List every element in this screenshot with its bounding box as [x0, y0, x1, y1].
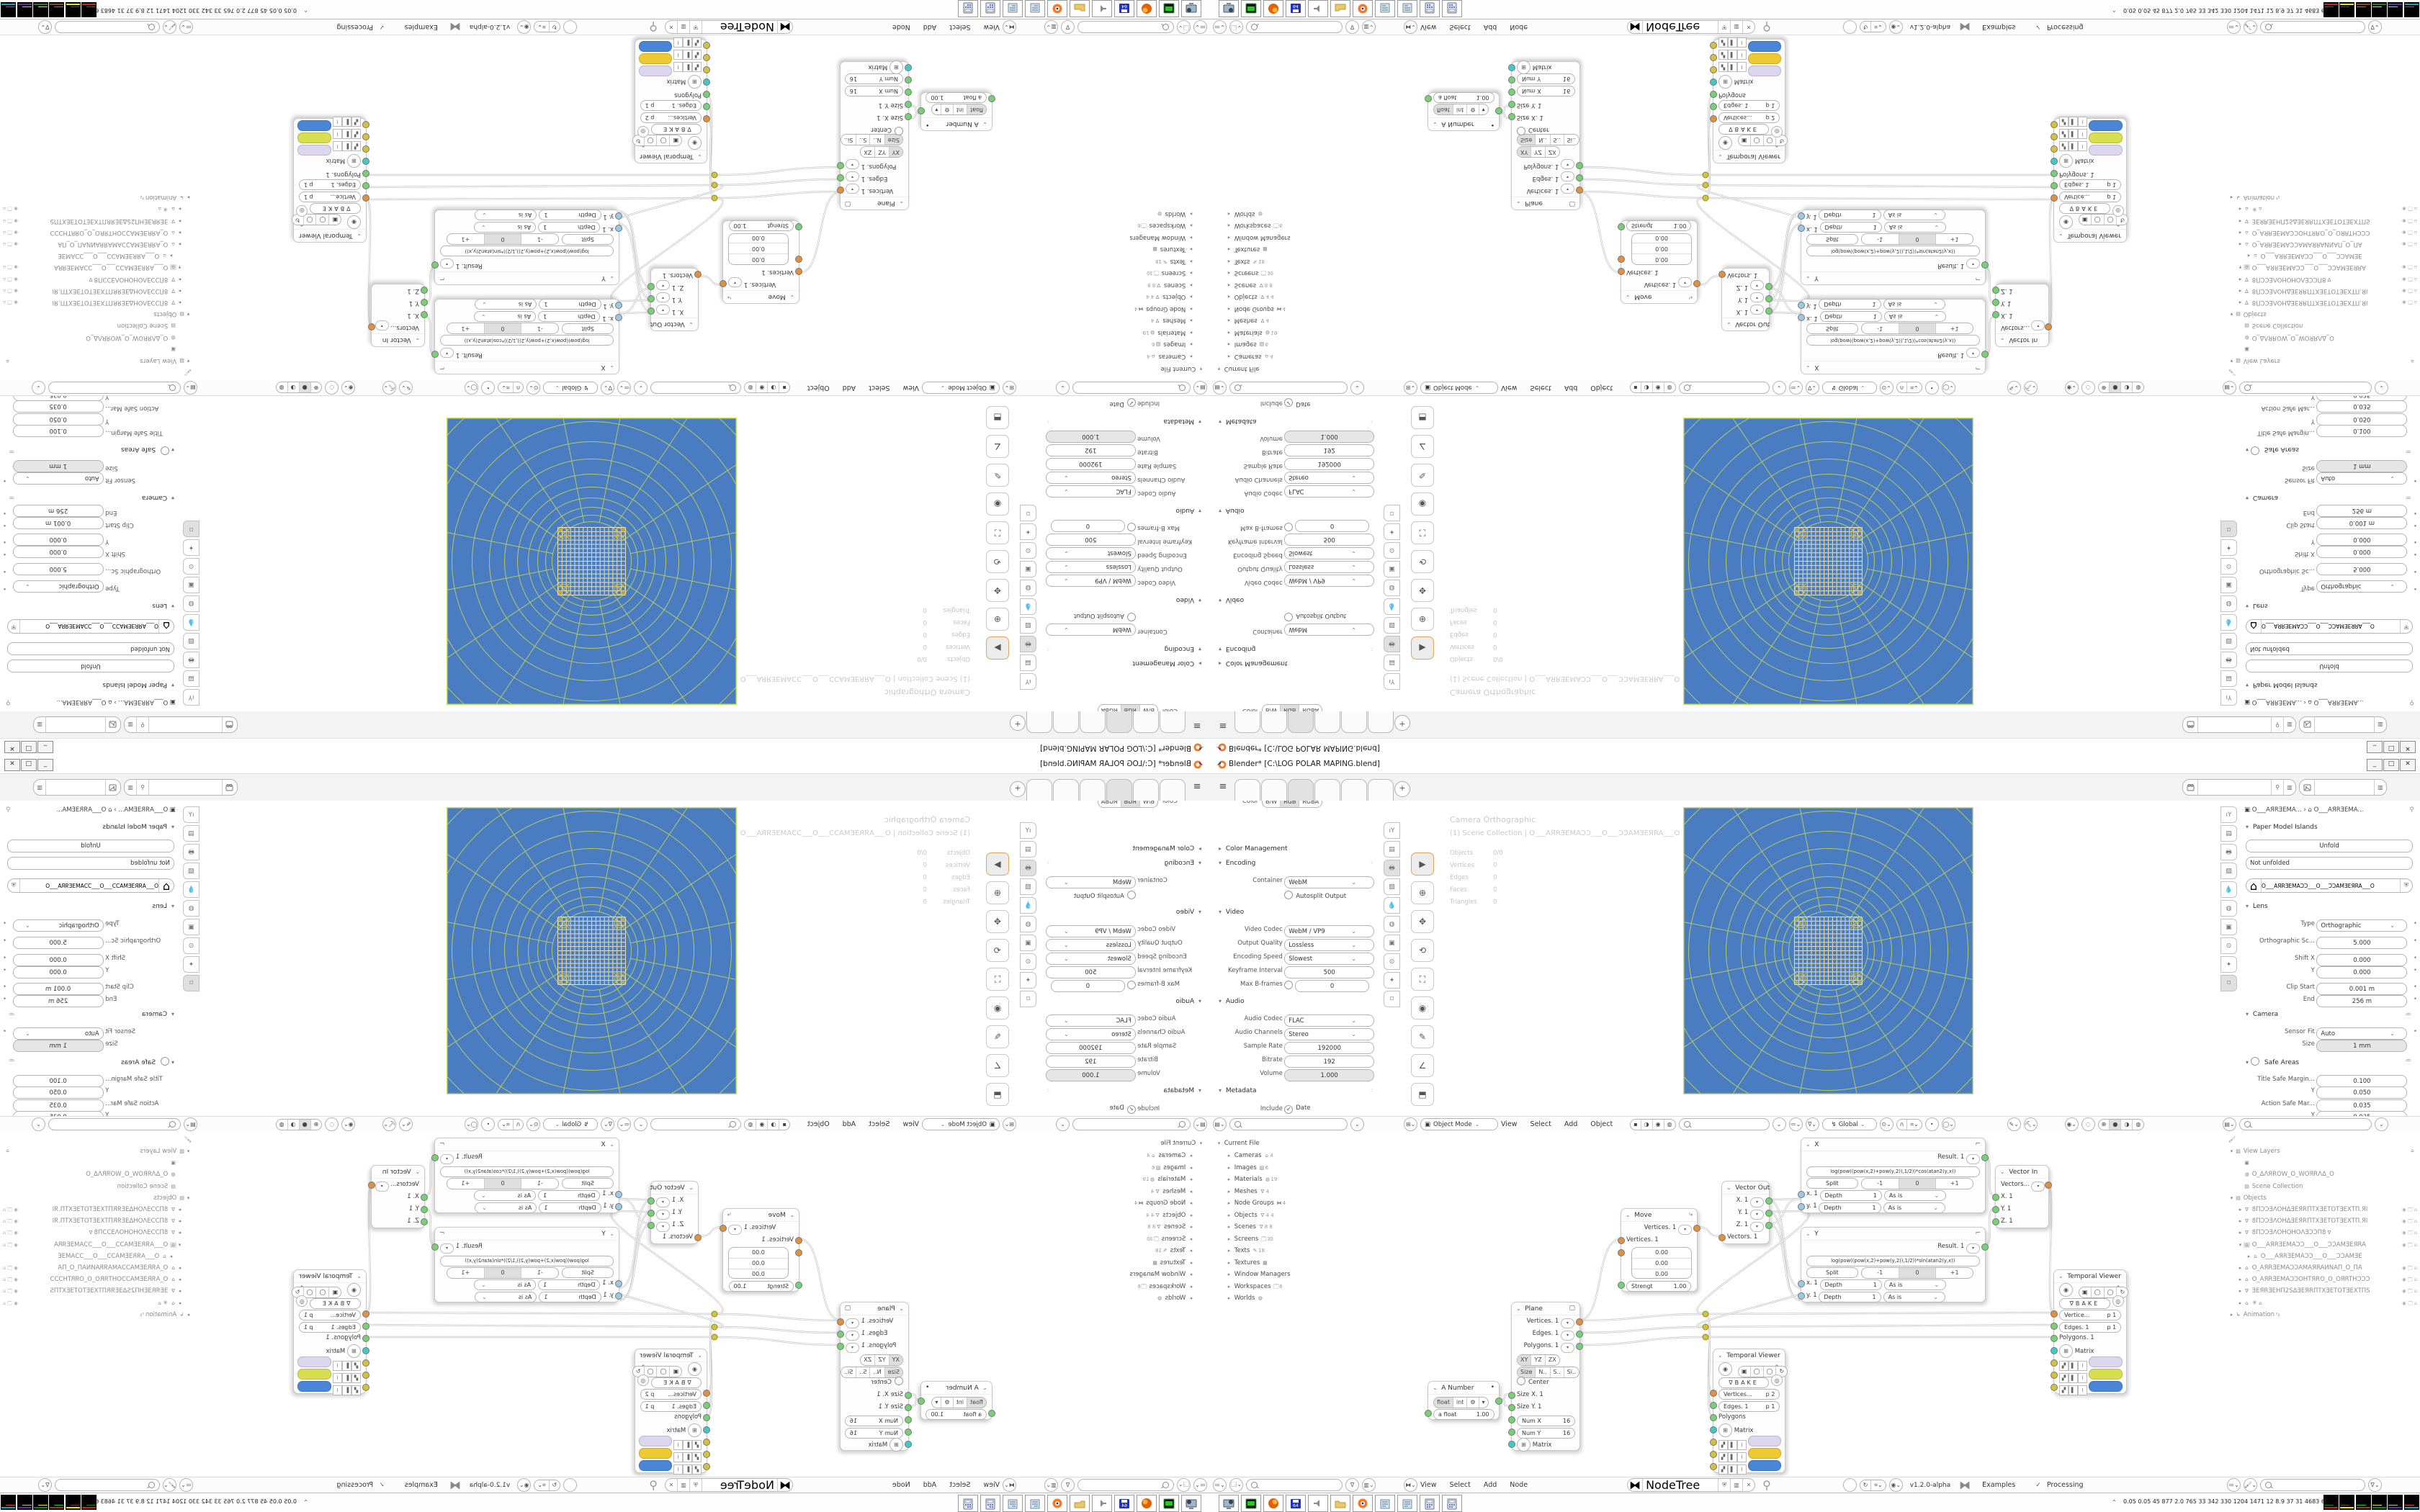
panel-options-icon[interactable]: ⁘	[1369, 860, 1374, 866]
field-value[interactable]: 5.000	[13, 563, 104, 575]
fake-user-shield-icon[interactable]: ⛨	[8, 879, 20, 892]
property-tab-icon[interactable]: ▤	[1020, 841, 1036, 858]
funnel-filter-icon[interactable]: ∇⌄	[601, 381, 614, 395]
taskbar-app-firefox[interactable]	[1263, 1495, 1283, 1512]
value-field[interactable]: Num X16	[845, 86, 903, 96]
segmented-option[interactable]: Size	[884, 135, 902, 145]
split-range-segmented[interactable]: -10+1	[1861, 323, 1973, 334]
menu-node[interactable]: Node	[892, 23, 910, 31]
input-socket[interactable]	[1425, 95, 1432, 102]
workspace-tab[interactable]	[1053, 779, 1079, 801]
orientation-dropdown[interactable]: ↯Global⌄	[1822, 382, 1877, 394]
collapse-chevron-icon[interactable]: ⌄	[634, 1117, 647, 1131]
taskbar-app-firefox[interactable]	[1263, 0, 1283, 17]
property-tab-icon[interactable]: 💧	[2220, 881, 2237, 898]
output-socket[interactable]	[431, 351, 439, 358]
output-socket[interactable]	[720, 1225, 727, 1232]
outliner-item[interactable]: ▤ Scene Collection	[2237, 322, 2419, 329]
node-title[interactable]: ⌄ Vector Out	[1722, 1182, 1769, 1194]
output-socket[interactable]	[368, 323, 375, 330]
tree-expand-icon[interactable]: ▾	[185, 311, 192, 317]
property-tab-icon[interactable]: ▣	[1020, 561, 1036, 577]
output-socket[interactable]	[1495, 107, 1502, 114]
collection-filter-icon[interactable]: ▥⌄	[1362, 20, 1376, 34]
outliner-item[interactable]: ▾ ▨ View Layers⌂	[1, 357, 192, 364]
tree-item-objects[interactable]: ▸ Objects ∇4 4	[1226, 294, 1274, 301]
color-swatch[interactable]	[639, 1460, 672, 1471]
shading-mini-icon[interactable]: ◑	[1641, 383, 1653, 393]
tray-monitor-block[interactable]	[66, 1495, 81, 1510]
tray-expand-icon[interactable]: ⌃	[2112, 6, 2117, 13]
tree-item-meshes[interactable]: ▸ Meshes ∇4	[1226, 1188, 1269, 1195]
tray-monitor-block[interactable]	[2323, 2, 2339, 17]
mode-dropdown[interactable]: As is⌄	[1883, 210, 1945, 220]
vector-in-node[interactable]: ⌄ Vector InVectors... ▾X. 1Y. 1Z. 1	[371, 284, 425, 347]
overlay-toggle-icon[interactable]: ◌	[2081, 381, 2095, 395]
tree-item-node-groups[interactable]: ▸ Node Groups ⧓4	[1134, 1200, 1194, 1207]
value-field[interactable]: Strengt1.00	[1626, 220, 1691, 231]
outliner-item[interactable]: ▾ ▤ Objects	[2228, 310, 2419, 318]
tree-expand-icon[interactable]: ▸	[1188, 1224, 1194, 1230]
node-collapse-icon[interactable]: ⌄	[1516, 1305, 1523, 1312]
output-socket[interactable]	[720, 280, 727, 287]
node-collapse-icon[interactable]: ⌄	[687, 321, 694, 328]
value-field[interactable]: Vertice...p 1	[299, 1310, 361, 1320]
node-header-icon[interactable]: ⌐	[1975, 361, 1981, 374]
formula-field[interactable]: log(pow((pow(x,2)+pow(y,2)),1/2))*sin(at…	[1806, 246, 1980, 256]
property-tab-icon[interactable]: ⊙	[1384, 542, 1400, 559]
input-socket[interactable]	[615, 314, 622, 321]
search-input[interactable]	[2260, 1479, 2365, 1491]
checkbox-icon[interactable]	[1127, 613, 1136, 621]
property-tab-icon[interactable]: 💧	[183, 881, 200, 898]
workspace-tab[interactable]	[1288, 711, 1314, 733]
panel-header-camera[interactable]: ▾ Camera	[142, 1011, 174, 1018]
funnel-filter-icon[interactable]: ∇⌄	[1806, 381, 1819, 395]
visibility-toggles[interactable]: ◉ 🗔 ⌂	[2402, 1300, 2417, 1308]
vector-out-node[interactable]: ⌄ Vector OutX. 1 ▾Y. 1 ▾Z. 1 ▾Vectors. 1	[1721, 268, 1770, 331]
swatch-option-icon[interactable]: ▌	[1728, 1464, 1737, 1475]
tree-expand-icon[interactable]: ▸	[176, 230, 183, 235]
visibility-toggles[interactable]: ◉ 🗔 ⌂	[2402, 297, 2417, 305]
pin-icon[interactable]: ⚲	[2409, 806, 2414, 814]
menu-node[interactable]: Node	[892, 1481, 910, 1489]
node-title[interactable]: ⌄ X⌐	[1801, 1138, 1985, 1151]
input-socket[interactable]	[362, 145, 369, 153]
gizmo-toggle-icon[interactable]: ◉⌄	[341, 381, 355, 395]
tray-monitor-block[interactable]	[49, 1495, 64, 1510]
property-tab-icon[interactable]: ◍	[1384, 916, 1400, 932]
animate-dot-icon[interactable]: •	[3, 585, 6, 592]
input-socket[interactable]	[1618, 1237, 1625, 1244]
pin-icon[interactable]: ⚲	[649, 20, 658, 34]
outliner-item[interactable]: ▸ ⌂ ✳ ⌂◉ 🗔 ⌂	[1, 205, 183, 212]
field-value[interactable]: WebM⌄	[1046, 876, 1136, 888]
swatch-option-icon[interactable]: ▞	[351, 1385, 361, 1395]
eye-icon[interactable]: ◉	[347, 215, 361, 229]
input-socket[interactable]	[703, 103, 710, 110]
color-mode-segmented[interactable]: B/WRGBRGBA	[1098, 801, 1158, 808]
tool-dropdown-icon[interactable]: ⛏⌄	[2024, 381, 2038, 395]
tree-root[interactable]: ▾ Current File	[1216, 1140, 1260, 1147]
overlay-dropdown-icon[interactable]: ◉⌄	[1889, 20, 1903, 34]
a-number-node[interactable]: ⌄ A Number •floatint⚙▾a float1.00	[920, 92, 992, 131]
swatch-option-icon[interactable]: ▞	[351, 117, 361, 127]
search-input[interactable]	[650, 382, 741, 394]
eye-icon[interactable]: ◉	[2059, 215, 2073, 229]
mini-shading-segmented[interactable]: ▪◑◉◍	[1630, 382, 1675, 394]
outliner-item[interactable]: ▸ ↳ Animation ²₂	[1, 194, 192, 201]
workspace-tab[interactable]	[1133, 711, 1159, 733]
pin-icon[interactable]: ⚲	[2271, 717, 2283, 732]
property-tab-icon[interactable]: ▤	[183, 670, 200, 687]
shading-mode-icon[interactable]: ●	[299, 383, 310, 393]
input-socket[interactable]	[2051, 145, 2058, 153]
panel-header-video[interactable]: ▾ Video	[1219, 909, 1244, 916]
animate-dot-icon[interactable]: •	[2414, 521, 2417, 528]
outliner-item[interactable]: ▸ ∇ 8ПƆƆƎΛOHΔƎEЯRПTXƎETOTƎEXTП.ЯI◉ 🗔 ⌂	[1, 1218, 183, 1225]
pivot-point-icon[interactable]: ⊙⌄	[526, 1117, 540, 1131]
matrix-icon[interactable]: ⊞	[889, 1438, 903, 1452]
taskbar-app-console[interactable]	[1159, 1495, 1179, 1512]
dropdown-icon[interactable]: ▾	[1966, 1243, 1980, 1254]
tray-monitor-block[interactable]	[2404, 1495, 2419, 1510]
taskbar-app-calculator[interactable]	[980, 1495, 1000, 1512]
search-input[interactable]	[55, 21, 160, 33]
animate-dot-icon[interactable]: •	[3, 984, 6, 991]
value-field[interactable]: Edges. 1p 1	[1718, 1401, 1780, 1412]
taskbar-app-notepad[interactable]	[1025, 1495, 1045, 1512]
panel-header-paper-model-islands[interactable]: ▾ Paper Model Islands	[2246, 681, 2318, 688]
tree-root[interactable]: ▾ Current File	[1160, 365, 1204, 372]
shading-mini-icon[interactable]: ◑	[767, 1120, 779, 1130]
vector-field[interactable]: ▴0.00M0.000.00	[728, 233, 789, 265]
input-socket[interactable]	[362, 1359, 369, 1367]
transform-tool[interactable]: ◉	[986, 492, 1009, 516]
editor-type-icon[interactable]: ▤⌄	[184, 381, 197, 395]
field-value[interactable]: WebM / VP9⌄	[1284, 925, 1374, 937]
menu-add[interactable]: Add	[1484, 1481, 1497, 1489]
swatch-option-icon[interactable]: ▌	[683, 37, 692, 48]
panel-list-icon[interactable]: ≔	[9, 495, 14, 501]
range-option[interactable]: -1	[521, 1268, 558, 1278]
minimize-button[interactable]: _	[2367, 759, 2383, 771]
node-title[interactable]: ⌄ Vector Out	[1722, 318, 1769, 330]
property-tab-icon[interactable]: ıY	[1020, 673, 1036, 690]
menu-object[interactable]: Object	[807, 1120, 830, 1128]
mode-dropdown[interactable]: As is⌄	[475, 210, 537, 220]
collection-filter-icon[interactable]: ▥⌄	[1362, 1478, 1376, 1492]
swatch-option-icon[interactable]: ⌇	[333, 1385, 342, 1395]
panel-checkbox-icon[interactable]	[161, 446, 169, 455]
tree-expand-icon[interactable]: ▸	[1226, 1236, 1232, 1242]
tree-expand-icon[interactable]: ▸	[1188, 342, 1194, 348]
visibility-toggles[interactable]: ◉ 🗔 ⌂	[3, 239, 18, 247]
search-input[interactable]	[1072, 382, 1191, 394]
input-socket[interactable]	[1710, 1439, 1717, 1446]
tree-item-screens[interactable]: ▸ Screens 🗔30	[1226, 1236, 1273, 1244]
new-layer-icon[interactable]: ▥	[2374, 780, 2386, 795]
shading-mini-icon[interactable]: ◉	[756, 1120, 767, 1130]
input-socket[interactable]	[703, 1390, 710, 1397]
new-layer-icon[interactable]: ▥	[34, 717, 46, 732]
value-field[interactable]: Num Y16	[845, 73, 903, 84]
panel-header-metadata[interactable]: ▾ Metadata	[1164, 1087, 1202, 1094]
nodetree-selector[interactable]: ⧓NodeTree⛨▥✕	[1627, 20, 1755, 34]
output-socket[interactable]	[837, 1331, 844, 1338]
segmented-option[interactable]: float	[967, 1398, 986, 1408]
mode-dropdown[interactable]: ▣Object Mode⌄	[922, 1118, 1000, 1130]
input-socket[interactable]	[1618, 223, 1625, 230]
tray-monitor-block[interactable]	[81, 2, 97, 17]
tree-expand-icon[interactable]: ▸	[1188, 211, 1194, 217]
tree-item-worlds[interactable]: ▸ Worlds ◍	[1157, 210, 1194, 217]
menu-view[interactable]: View	[983, 23, 1000, 31]
vector-component[interactable]: 0.00	[1632, 1269, 1691, 1279]
input-socket[interactable]	[2051, 1323, 2058, 1330]
workspace-tab[interactable]	[1368, 711, 1394, 733]
output-socket[interactable]	[1765, 1197, 1773, 1205]
property-tab-icon[interactable]: ▤	[1020, 654, 1036, 671]
value-field[interactable]: Edges. 1p 1	[2059, 1322, 2121, 1333]
tree-expand-icon[interactable]: ▸	[176, 300, 183, 305]
snap-pill[interactable]: ↻⌗⌄	[1860, 1480, 1886, 1491]
cursor-tool[interactable]: ⊕	[1411, 608, 1434, 631]
menu-add[interactable]: Add	[1484, 23, 1497, 31]
field-value[interactable]: 0.000	[13, 966, 104, 978]
search-input[interactable]	[2260, 21, 2365, 33]
tree-expand-icon[interactable]: ▾	[2228, 1148, 2235, 1154]
dropdown-icon[interactable]: ▾	[375, 1182, 389, 1192]
tree-expand-icon[interactable]: ▸	[1226, 1189, 1232, 1194]
dropdown-icon[interactable]: ▾	[1750, 1210, 1764, 1220]
property-tab-icon[interactable]: ◍	[1020, 916, 1036, 932]
field-value[interactable]: 256 m	[13, 505, 104, 517]
color-mode-option[interactable]: RGBA	[1299, 705, 1322, 711]
matrix-icon[interactable]: ⊞	[347, 154, 361, 168]
output-socket[interactable]	[1981, 261, 1989, 269]
field-value[interactable]: 0	[1051, 980, 1125, 992]
visibility-toggles[interactable]: ◉ 🗔 ⌂	[3, 1242, 18, 1250]
input-socket[interactable]	[362, 121, 369, 128]
tree-item-window-managers[interactable]: ▸ Window Managers	[1129, 1271, 1194, 1278]
property-tab-icon[interactable]: ıY	[1384, 673, 1400, 690]
property-tab-icon[interactable]: ✦	[183, 956, 200, 973]
tree-expand-icon[interactable]: ▸	[1188, 1189, 1194, 1194]
color-mode-segmented[interactable]: B/WRGBRGBA	[1098, 704, 1158, 711]
add-workspace-button[interactable]: +	[1394, 715, 1410, 731]
formula-field[interactable]: log(pow((pow(x,2)+pow(y,2)),1/2))*cos(at…	[1806, 335, 1980, 346]
tree-expand-icon[interactable]: ▾	[176, 1242, 183, 1248]
editor-type-icon[interactable]: ▤⌄	[2223, 1117, 2236, 1131]
select-icon[interactable]: ◎	[296, 205, 308, 217]
property-tab-icon[interactable]: 🖶	[2220, 844, 2237, 860]
node-title[interactable]: ⌄ A Number •	[1428, 1382, 1499, 1395]
node-collapse-icon[interactable]: ⌄	[413, 1169, 420, 1175]
shading-mini-icon[interactable]: ◍	[745, 383, 756, 393]
snap-pill[interactable]: ∩⌗⌄	[1896, 1119, 1922, 1130]
animate-dot-icon[interactable]: •	[2414, 967, 2417, 974]
property-tab-icon[interactable]: ⊙	[1020, 542, 1036, 559]
panel-header-audio[interactable]: ▾ Audio	[1219, 998, 1244, 1005]
node-collapse-icon[interactable]: ⌄	[1516, 200, 1523, 207]
segmented-option[interactable]: Size	[1518, 135, 1536, 145]
input-socket[interactable]	[2051, 1310, 2058, 1318]
panel-list-icon[interactable]: ≔	[9, 1011, 14, 1017]
shading-mode-segmented[interactable]: ⊕●◑◍	[2098, 1119, 2145, 1130]
input-socket[interactable]	[2051, 133, 2058, 140]
field-value[interactable]: 500	[1284, 966, 1374, 978]
tree-expand-icon[interactable]: ▸	[176, 276, 183, 282]
orientation-dropdown[interactable]: ↯Global⌄	[543, 382, 598, 394]
tree-item-texts[interactable]: ▸ Texts ✎18	[1155, 258, 1194, 265]
outliner-item[interactable]: ▸ ∇ 8ПƆƆƎΛOHOHOΛƎƆƆП8 ∇◉ 🗔 ⌂	[1, 1229, 183, 1236]
input-socket[interactable]	[2051, 121, 2058, 128]
property-tab-icon[interactable]: 💧	[2220, 614, 2237, 631]
temporal-viewer-2-node[interactable]: ⌄ Temporal Viewer✎◉▣◯◯↻∇ BAKE◎Vertice...…	[2053, 118, 2127, 243]
outliner-item[interactable]: ▸ ∇ 8ПƆƆƎΛOHOHOΛƎƆƆП8 ∇◉ 🗔 ⌂	[1, 276, 183, 283]
taskbar-app-folder[interactable]	[1330, 0, 1350, 17]
search-input[interactable]	[650, 1118, 741, 1130]
checkbox-icon[interactable]	[895, 127, 903, 135]
color-swatch[interactable]	[639, 53, 672, 64]
field-value[interactable]: 256 m	[2316, 505, 2407, 517]
input-socket[interactable]	[703, 66, 710, 73]
measure-tool[interactable]: ∠	[986, 435, 1009, 458]
panel-header-video[interactable]: ▾ Video	[1176, 596, 1201, 603]
panel-header-video[interactable]: ▾ Video	[1219, 596, 1244, 603]
value-field[interactable]: a float1.00	[1433, 1409, 1494, 1420]
segmented-option[interactable]: S..	[856, 1367, 869, 1377]
proportional-edit-icon[interactable]: •	[481, 381, 495, 395]
tree-expand-icon[interactable]: ▸	[176, 206, 183, 212]
field-value[interactable]: 1 mm	[2316, 1040, 2407, 1052]
visibility-toggles[interactable]: ◉ 🗔 ⌂	[2402, 274, 2417, 282]
taskbar-app-blender[interactable]	[1353, 1495, 1373, 1512]
property-tab-icon[interactable]: ⌑	[1384, 991, 1400, 1007]
search-input[interactable]	[1679, 382, 1770, 394]
property-tab-icon[interactable]: ⌑	[1020, 991, 1036, 1007]
animate-dot-icon[interactable]: •	[3, 955, 6, 962]
property-tab-icon[interactable]: ▣	[1384, 935, 1400, 951]
segmented-option[interactable]: N..	[1536, 135, 1550, 145]
dropdown-icon[interactable]: ▾	[1966, 1154, 1980, 1164]
tool-dropdown-icon[interactable]: ⛏⌄	[382, 1117, 396, 1131]
input-socket[interactable]	[421, 1206, 428, 1213]
color-swatch[interactable]	[297, 120, 331, 131]
dropdown-icon[interactable]: ▾	[728, 278, 742, 288]
field-value[interactable]: 500	[1284, 534, 1374, 546]
tree-expand-icon[interactable]: ▸	[1226, 1295, 1232, 1301]
shading-mini-icon[interactable]: ◑	[767, 383, 779, 393]
node-collapse-icon[interactable]: ⌄	[981, 121, 987, 127]
matrix-icon[interactable]: ⊞	[1517, 60, 1531, 74]
segmented-control[interactable]: XYYZZX	[1517, 146, 1560, 158]
visibility-toggles[interactable]: ◉ 🗔 ⌂	[3, 297, 18, 305]
field-value[interactable]: 0.001 m	[2316, 983, 2407, 995]
menu-object[interactable]: Object	[1590, 384, 1613, 392]
segmented-option[interactable]: YZ	[874, 147, 888, 157]
mode-dropdown[interactable]: As is⌄	[474, 1279, 536, 1290]
shading-mode-segmented[interactable]: ⊕●◑◍	[276, 1119, 323, 1130]
shading-mode-icon[interactable]: ⊕	[310, 383, 322, 393]
range-option[interactable]: +1	[1936, 1179, 1973, 1189]
display-mode-icon[interactable]: ≔⌄	[179, 1478, 193, 1492]
workspace-tab[interactable]	[1080, 711, 1106, 733]
animate-dot-icon[interactable]: •	[2414, 550, 2417, 557]
taskbar-app-blender[interactable]	[1353, 0, 1373, 17]
field-value[interactable]: 5.000	[2316, 937, 2407, 949]
panel-list-icon[interactable]: ≔	[2406, 1057, 2411, 1063]
input-socket[interactable]	[795, 256, 802, 263]
node-title[interactable]: ⌄ Temporal Viewer✎	[2054, 229, 2126, 242]
value-field[interactable]: Strengt1.00	[729, 1281, 794, 1292]
field-value[interactable]: 0.000	[2316, 534, 2407, 546]
nodetree-selector[interactable]: ⧓NodeTree⛨▥✕	[1627, 1478, 1755, 1492]
menu-view[interactable]: View	[902, 384, 919, 392]
node-collapse-icon[interactable]: ⌄	[608, 364, 614, 371]
outliner-item[interactable]: ▾ ▨ View Layers⌂	[2228, 357, 2419, 364]
output-socket[interactable]	[918, 107, 925, 114]
taskbar-app-dos64[interactable]: 64	[1286, 0, 1306, 17]
range-option[interactable]: +1	[447, 1268, 484, 1278]
output-socket[interactable]	[368, 1182, 375, 1189]
output-socket[interactable]	[1765, 307, 1773, 315]
output-socket[interactable]	[2045, 1182, 2052, 1189]
vector-component[interactable]: ▴0.00	[1632, 1248, 1691, 1259]
input-socket[interactable]	[2051, 194, 2058, 202]
visibility-toggles[interactable]: ◉ 🗔 ⌂	[3, 286, 18, 294]
matrix-icon[interactable]: ⊞	[1718, 75, 1732, 89]
dropdown-icon[interactable]: ▾	[656, 281, 670, 291]
input-socket[interactable]	[1710, 1402, 1717, 1409]
new-layer-icon[interactable]: ▥	[34, 780, 46, 795]
vector-field[interactable]: ▴0.00M0.000.00	[728, 1247, 789, 1279]
visibility-toggles[interactable]: ◉ 🗔 ⌂	[3, 204, 18, 212]
property-tab-icon[interactable]: ◍	[1384, 580, 1400, 596]
field-value[interactable]: 1 mm	[2316, 460, 2407, 472]
tree-expand-icon[interactable]: ▸	[1226, 1200, 1232, 1206]
property-tab-icon[interactable]: 💧	[1020, 598, 1036, 615]
tree-expand-icon[interactable]: ▸	[1226, 294, 1232, 300]
dropdown-icon[interactable]: ▾	[440, 1154, 454, 1164]
node-title[interactable]: ⌄ Temporal Viewer✎	[294, 1270, 366, 1283]
input-socket[interactable]	[1508, 1441, 1515, 1448]
panel-header-lens[interactable]: ▾ Lens	[2246, 602, 2268, 609]
dropdown-icon[interactable]: ▾	[1561, 1343, 1574, 1353]
rotate-tool[interactable]: ⟲	[1411, 550, 1434, 573]
dropdown-icon[interactable]: ▾	[1750, 281, 1764, 291]
color-swatch[interactable]	[2089, 120, 2123, 131]
collapse-chevron-icon[interactable]: ⌄	[1773, 381, 1786, 395]
outliner-item[interactable]: ▸ ⌂ O_AЯRƎEMAƆƆAMAЯRAИNAП_O_ПA◉ 🗔 ⌂	[2237, 240, 2419, 248]
visibility-toggles[interactable]: ◉ 🗔 ⌂	[2402, 286, 2417, 294]
color-mode-option[interactable]: RGB	[1281, 705, 1299, 711]
rotate-icon[interactable]: ↻	[549, 22, 560, 32]
split-button[interactable]: Split	[562, 234, 614, 245]
display-mode-icon[interactable]: ≔⌄	[1193, 1478, 1207, 1492]
animate-dot-icon[interactable]: •	[2414, 509, 2417, 516]
workspace-tab[interactable]	[1261, 711, 1287, 733]
checkbox-icon[interactable]: ✓	[1284, 1105, 1293, 1114]
workspace-tab[interactable]	[1234, 711, 1260, 733]
field-value[interactable]: 500	[1046, 966, 1136, 978]
menu-select[interactable]: Select	[869, 384, 889, 392]
tree-expand-icon[interactable]: ▾	[2237, 1242, 2244, 1248]
property-tab-icon[interactable]: ⌑	[183, 521, 200, 537]
field-value[interactable]: 5.000	[13, 937, 104, 949]
outliner-item[interactable]: ▸ ↳ Animation ²₂	[2228, 1311, 2419, 1318]
